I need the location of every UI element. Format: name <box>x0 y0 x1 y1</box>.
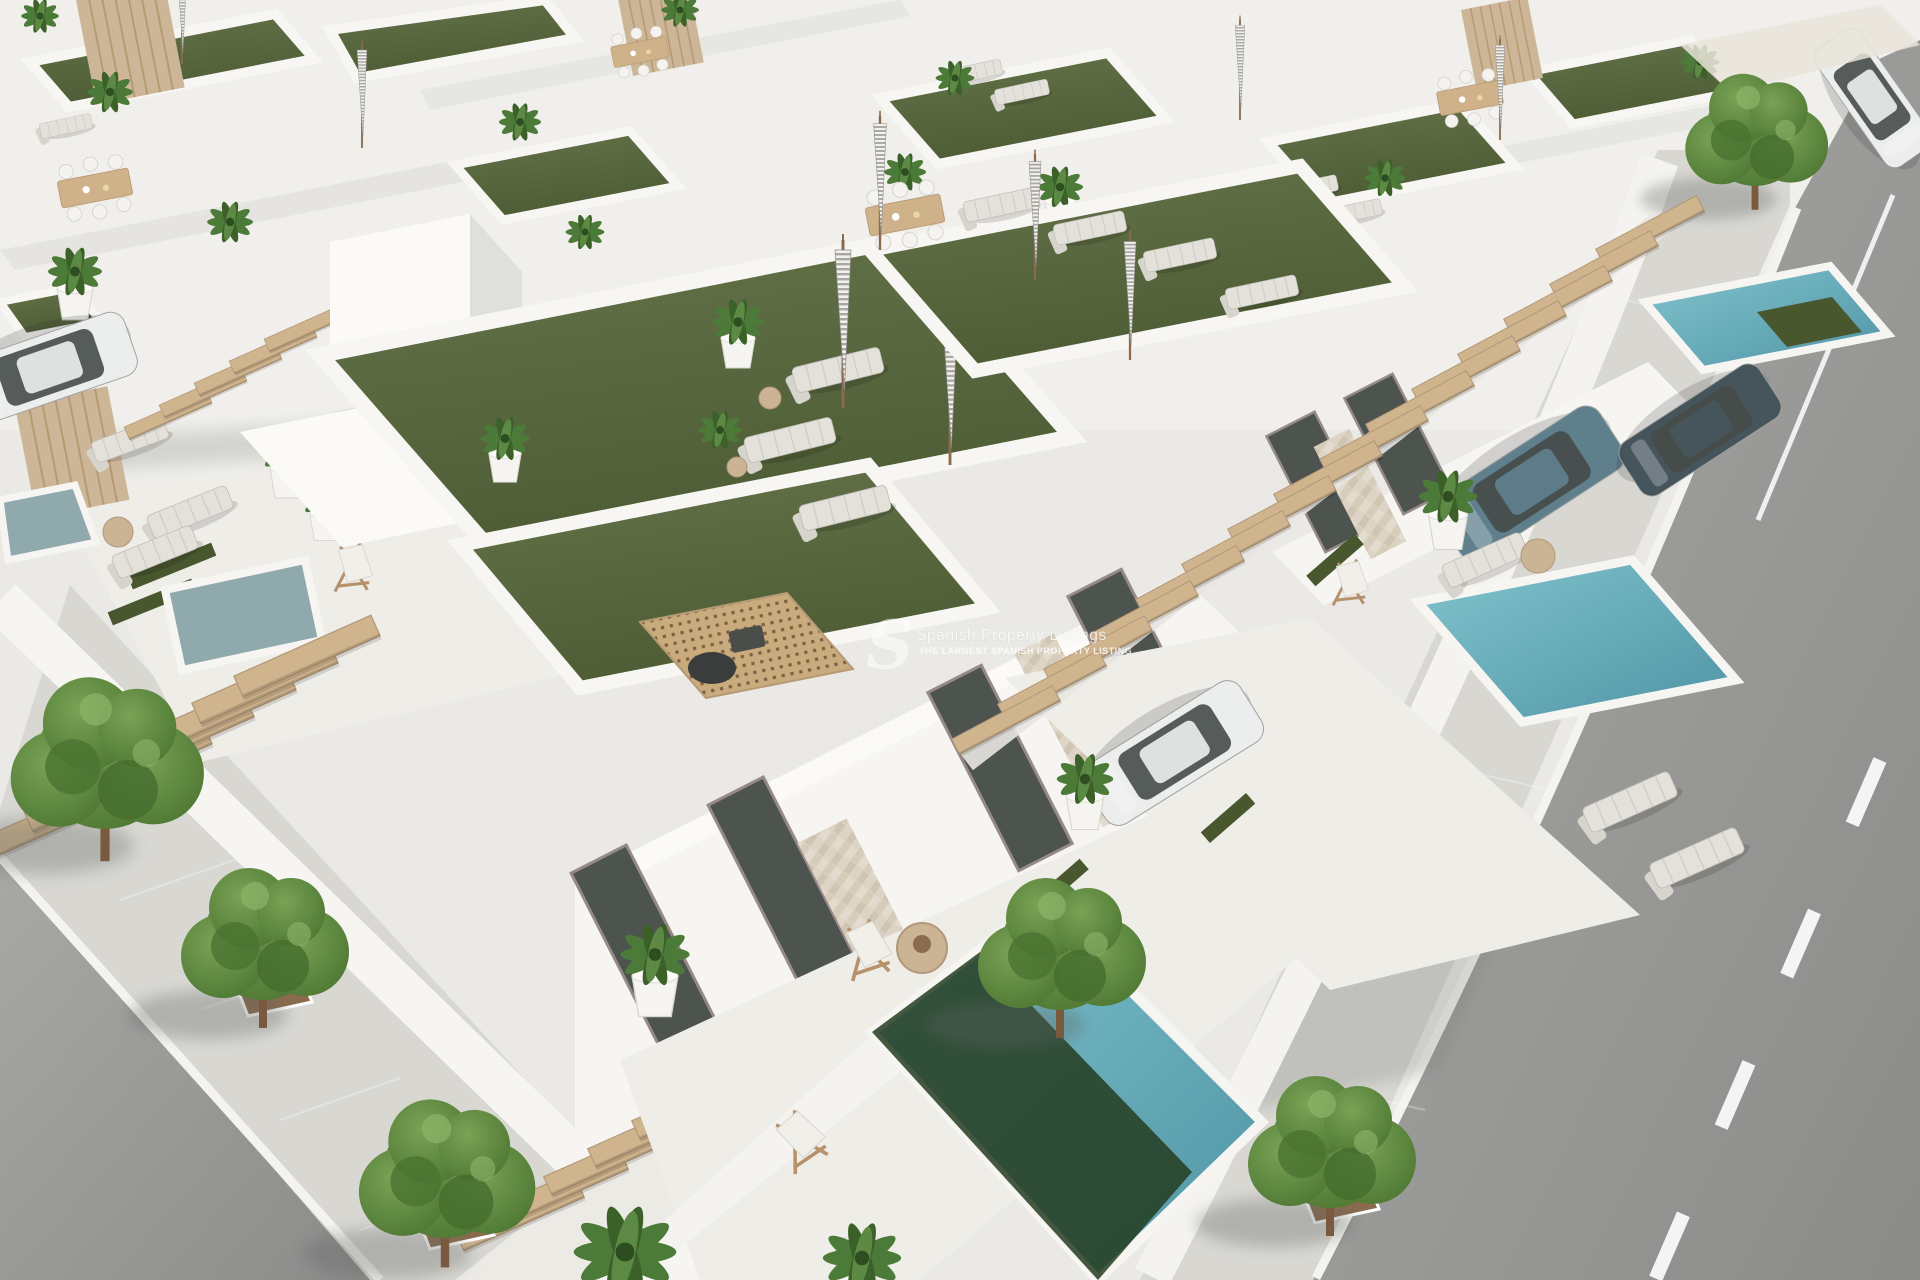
render-canvas: S Spanish Property Listings THE LARGEST … <box>0 0 1920 1280</box>
watermark-title: Spanish Property Listings <box>916 627 1107 644</box>
side-table <box>727 457 747 477</box>
side-table <box>759 387 781 409</box>
watermark-logo: S <box>866 606 914 684</box>
table-vase <box>913 935 931 953</box>
rattan-side-table <box>103 517 133 547</box>
watermark-tagline: THE LARGEST SPANISH PROPERTY LISTING <box>919 646 1132 656</box>
villa-development-render: S Spanish Property Listings THE LARGEST … <box>0 0 1920 1280</box>
rattan-side-table <box>1521 539 1555 573</box>
bbq-grill <box>688 652 736 684</box>
